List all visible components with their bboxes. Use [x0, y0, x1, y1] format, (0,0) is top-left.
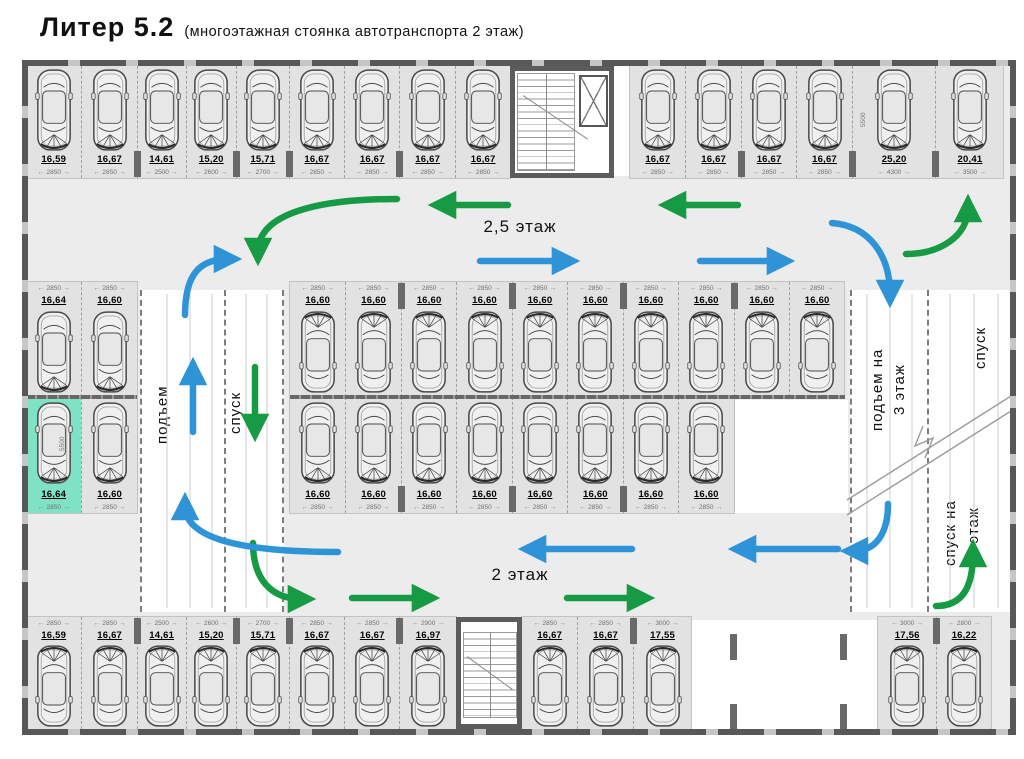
parking-spot: 16,67 2850 — [455, 66, 510, 178]
column — [932, 151, 939, 177]
left-pair-divider-wall — [26, 395, 137, 399]
spot-area-label: 15,20 — [187, 629, 237, 642]
parking-spot: 16,60 2850 — [512, 397, 567, 513]
column — [933, 618, 940, 644]
spot-area-label: 16,60 — [82, 488, 136, 501]
spot-area-label: 15,71 — [237, 629, 289, 642]
column — [730, 704, 737, 730]
parking-spot: 16,67 2850 — [685, 66, 740, 178]
spot-width-dim: 2500 — [138, 166, 186, 178]
stairwell-top — [510, 66, 614, 178]
parking-spot: 16,60 2850 — [81, 397, 136, 513]
car-icon — [400, 642, 455, 729]
ramp-down1-label-line2: 1 этаж — [965, 458, 982, 608]
spot-width-dim: 2850 — [578, 617, 632, 629]
car-icon — [578, 642, 632, 729]
parking-spot: 16,59 2850 — [26, 66, 81, 178]
parking-spot: 16,67 2850 — [289, 617, 344, 729]
floor-label-upper: 2,5 этаж — [450, 217, 590, 237]
spot-area-label: 16,67 — [630, 153, 685, 166]
parking-spot: 16,60 2850 — [678, 397, 733, 513]
car-icon — [346, 397, 400, 488]
parking-spot: 16,60 2850 — [567, 282, 622, 397]
spot-width-dim: 4300 — [853, 166, 936, 178]
staircase-icon — [517, 73, 575, 171]
staircase-icon — [463, 632, 517, 718]
spot-width-dim: 3000 — [634, 617, 691, 629]
parking-spot: 16,67 2850 — [344, 66, 399, 178]
spot-width-dim: 2850 — [290, 166, 344, 178]
column — [840, 634, 847, 660]
parking-spot: 16,97 2900 — [399, 617, 455, 729]
spot-width-dim: 2850 — [26, 282, 81, 294]
column — [840, 704, 847, 730]
spot-width-dim: 2600 — [187, 166, 237, 178]
spot-width-dim: 2600 — [187, 617, 237, 629]
car-icon — [400, 66, 454, 153]
spot-width-dim: 2850 — [400, 166, 454, 178]
spot-area-label: 15,71 — [237, 153, 289, 166]
car-icon — [138, 642, 186, 729]
parking-spot: 16,60 2850 — [81, 282, 136, 397]
car-icon — [290, 66, 344, 153]
car-icon — [742, 66, 796, 153]
car-icon — [790, 307, 844, 397]
parking-spot: 20,41 3500 — [935, 66, 1003, 178]
spot-width-dim: 2850 — [742, 166, 796, 178]
spot-area-label: 15,20 — [187, 153, 237, 166]
parking-row-bottom-right: 17,56 3000 — [878, 617, 991, 729]
spot-width-dim: 2850 — [290, 617, 344, 629]
ramp-up3-label-line1: подъем на — [869, 305, 886, 475]
spot-width-dim: 2700 — [237, 166, 289, 178]
spot-width-dim: 2850 — [568, 501, 622, 513]
spot-width-dim: 2850 — [345, 166, 399, 178]
car-icon — [513, 397, 567, 488]
column — [730, 634, 737, 660]
elevator-icon — [579, 75, 608, 127]
ramp-down1-label-line1: спуск на — [942, 458, 959, 608]
column — [849, 151, 856, 177]
spot-width-dim: 2850 — [513, 501, 567, 513]
spot-width-dim: 2850 — [290, 282, 345, 294]
spot-area-label: 16,60 — [82, 294, 136, 307]
spot-width-dim: 2850 — [735, 282, 789, 294]
spot-width-dim: 2850 — [457, 501, 511, 513]
spot-width-dim: 2850 — [346, 282, 400, 294]
open-area-bottom-center — [691, 620, 878, 732]
title-main: Литер 5.2 — [40, 12, 174, 43]
car-icon — [26, 397, 81, 488]
spot-area-label: 16,64 — [26, 294, 81, 307]
spot-area-label: 16,67 — [686, 153, 740, 166]
car-icon — [630, 66, 685, 153]
ramp-right-lane-up — [852, 290, 927, 612]
column — [738, 151, 745, 177]
spot-width-dim: 2850 — [402, 282, 456, 294]
car-icon — [937, 642, 990, 729]
parking-spot: 15,71 2700 — [236, 617, 289, 729]
car-icon — [237, 642, 289, 729]
spot-width-dim: 2850 — [457, 282, 511, 294]
car-icon — [345, 642, 399, 729]
parking-row-bottom-left: 16,59 2850 — [26, 617, 456, 729]
spot-area-label: 16,60 — [624, 294, 678, 307]
spot-width-dim: 2850 — [82, 282, 136, 294]
wall-bottom — [22, 729, 1016, 735]
spot-area-label: 16,60 — [290, 294, 345, 307]
parking-spot: 14,61 2500 — [137, 617, 186, 729]
car-icon — [522, 642, 577, 729]
parking-spot: 15,20 2600 — [186, 617, 237, 729]
parking-row-bottom-mid: 16,67 2850 — [522, 617, 691, 729]
car-icon — [26, 307, 81, 397]
parking-row-mid-lower: 16,60 2850 — [290, 397, 734, 513]
column — [620, 283, 627, 309]
column — [134, 151, 141, 177]
spot-width-dim: 2850 — [82, 617, 136, 629]
spot-area-label: 16,67 — [345, 153, 399, 166]
spot-area-label: 16,60 — [402, 488, 456, 501]
parking-spot: 17,56 3000 — [878, 617, 936, 729]
floor-label-lower: 2 этаж — [450, 565, 590, 585]
car-icon — [457, 307, 511, 397]
spot-area-label: 16,64 — [26, 488, 81, 501]
parking-spot: 16,60 2850 — [567, 397, 622, 513]
spot-width-dim: 2850 — [345, 617, 399, 629]
parking-spot: 16,67 2850 — [630, 66, 685, 178]
car-icon — [187, 66, 237, 153]
arrow-green-curve-tr — [906, 208, 968, 254]
parking-spot: 16,67 2850 — [289, 66, 344, 178]
car-icon — [82, 397, 136, 488]
car-icon — [624, 397, 678, 488]
parking-row-mid-upper: 16,60 2850 — [290, 282, 844, 397]
parking-spot: 16,60 2850 — [290, 282, 345, 397]
ramp-right-down-label: спуск — [972, 295, 989, 400]
ramp-down-label: спуск — [227, 360, 244, 465]
spot-width-dim: 2850 — [522, 617, 577, 629]
column — [286, 151, 293, 177]
parking-spot: 16,67 2850 — [344, 617, 399, 729]
spot-width-dim: 2850 — [630, 166, 685, 178]
car-icon — [457, 397, 511, 488]
wall-left — [22, 60, 28, 735]
page-title: Литер 5.2 (многоэтажная стоянка автотран… — [40, 12, 524, 43]
spot-area-label: 16,60 — [568, 488, 622, 501]
spot-width-dim: 3000 — [878, 617, 936, 629]
parking-spot: 16,60 2850 — [456, 397, 511, 513]
parking-spot: 14,61 2500 — [137, 66, 186, 178]
arrow-green-curve-tl — [258, 199, 397, 252]
car-icon — [797, 66, 851, 153]
spot-area-label: 16,60 — [457, 488, 511, 501]
car-icon — [568, 307, 622, 397]
column — [398, 486, 405, 512]
parking-spot: 16,60 2850 — [345, 282, 400, 397]
ramp-up-label: подъем — [154, 355, 171, 475]
spot-width-dim: 2850 — [346, 501, 400, 513]
car-icon — [138, 66, 186, 153]
wall-top — [22, 60, 1016, 66]
spot-area-label: 16,67 — [400, 153, 454, 166]
spot-width-dim: 2500 — [138, 617, 186, 629]
gap-top-stairs-right — [612, 64, 630, 176]
parking-spot: 16,60 2850 — [678, 282, 733, 397]
stairwell-bottom — [456, 617, 522, 729]
parking-row-top-left: 16,59 2850 — [26, 66, 510, 178]
floor-plan: подъем спуск подъем на 3 этаж спуск спус… — [22, 60, 1016, 735]
column — [134, 618, 141, 644]
parking-spot: 16,22 2800 — [936, 617, 990, 729]
spot-area-label: 16,60 — [624, 488, 678, 501]
parking-spot: 16,60 2850 — [401, 282, 456, 397]
spot-width-dim: 2900 — [400, 617, 455, 629]
column — [286, 618, 293, 644]
spot-area-label: 14,61 — [138, 153, 186, 166]
spot-width-dim: 2850 — [686, 166, 740, 178]
car-icon — [290, 642, 344, 729]
car-icon — [237, 66, 289, 153]
car-icon — [735, 307, 789, 397]
parking-spot: 16,67 2850 — [522, 617, 577, 729]
depth-dim-right: 5500 — [860, 78, 867, 162]
spot-area-label: 16,60 — [290, 488, 345, 501]
spot-area-label: 16,60 — [346, 294, 400, 307]
car-icon — [568, 397, 622, 488]
spot-area-label: 16,67 — [797, 153, 851, 166]
spot-area-label: 16,60 — [346, 488, 400, 501]
spot-area-label: 16,97 — [400, 629, 455, 642]
car-icon — [290, 397, 345, 488]
spot-area-label: 16,67 — [345, 629, 399, 642]
spot-area-label: 16,67 — [456, 153, 510, 166]
parking-spot: 16,60 2850 — [623, 397, 678, 513]
parking-spot: 16,67 2850 — [577, 617, 632, 729]
spot-width-dim: 2850 — [26, 166, 81, 178]
spot-width-dim: 2850 — [568, 282, 622, 294]
car-icon — [187, 642, 237, 729]
car-icon — [679, 307, 733, 397]
spot-area-label: 17,55 — [634, 629, 691, 642]
spot-area-label: 16,60 — [513, 294, 567, 307]
car-icon — [26, 66, 81, 153]
car-icon — [878, 642, 936, 729]
parking-spot: 16,60 2850 — [789, 282, 844, 397]
spot-area-label: 17,56 — [878, 629, 936, 642]
spot-width-dim: 2850 — [456, 166, 510, 178]
parking-spot: 16,67 2850 — [81, 617, 136, 729]
car-icon — [82, 642, 136, 729]
spot-width-dim: 2850 — [290, 501, 345, 513]
column — [396, 151, 403, 177]
spot-width-dim: 2850 — [679, 282, 733, 294]
spot-width-dim: 2850 — [26, 501, 81, 513]
column — [233, 618, 240, 644]
column — [630, 618, 637, 644]
spot-area-label: 16,60 — [457, 294, 511, 307]
column — [398, 283, 405, 309]
spot-area-label: 16,60 — [402, 294, 456, 307]
parking-spot: 15,20 2600 — [186, 66, 237, 178]
spot-width-dim: 2850 — [513, 282, 567, 294]
parking-spot: 16,59 2850 — [26, 617, 81, 729]
depth-dim-left: 5500 — [59, 412, 66, 476]
parking-pair-left-upper: 16,64 2850 — [26, 282, 137, 397]
car-icon — [290, 307, 345, 397]
car-icon — [513, 307, 567, 397]
spot-area-label: 16,60 — [679, 488, 733, 501]
car-icon — [82, 307, 136, 397]
car-icon — [686, 66, 740, 153]
spot-area-label: 16,67 — [578, 629, 632, 642]
mid-divider-wall — [290, 395, 845, 399]
spot-width-dim: 2850 — [679, 501, 733, 513]
spot-width-dim: 2850 — [624, 501, 678, 513]
spot-width-dim: 2700 — [237, 617, 289, 629]
spot-area-label: 16,67 — [742, 153, 796, 166]
parking-spot: 16,60 2850 — [456, 282, 511, 397]
spot-area-label: 14,61 — [138, 629, 186, 642]
parking-spot: 16,60 2850 — [401, 397, 456, 513]
spot-area-label: 16,60 — [735, 294, 789, 307]
wall-right — [1010, 60, 1016, 735]
parking-spot: 16,60 2850 — [623, 282, 678, 397]
parking-spot: 16,67 2850 — [399, 66, 454, 178]
car-icon — [26, 642, 81, 729]
parking-spot: 16,60 2850 — [512, 282, 567, 397]
car-icon — [456, 66, 510, 153]
spot-width-dim: 2800 — [937, 617, 990, 629]
spot-width-dim: 2850 — [82, 166, 136, 178]
spot-area-label: 16,67 — [290, 629, 344, 642]
car-icon — [346, 307, 400, 397]
spot-width-dim: 2850 — [402, 501, 456, 513]
parking-row-top-right: 16,67 2850 — [630, 66, 1003, 178]
car-icon — [402, 397, 456, 488]
ramp-up3-label-line2: 3 этаж — [891, 305, 908, 475]
column — [233, 151, 240, 177]
spot-width-dim: 2850 — [797, 166, 851, 178]
spot-area-label: 16,67 — [82, 153, 136, 166]
car-icon — [82, 66, 136, 153]
spot-area-label: 16,67 — [522, 629, 577, 642]
parking-spot: 16,67 2850 — [796, 66, 851, 178]
parking-spot: 15,71 2700 — [236, 66, 289, 178]
parking-spot: 16,60 2850 — [734, 282, 789, 397]
spot-width-dim: 2850 — [624, 282, 678, 294]
parking-spot: 16,64 2850 — [26, 397, 81, 513]
car-icon — [345, 66, 399, 153]
spot-area-label: 16,59 — [26, 153, 81, 166]
title-sub: (многоэтажная стоянка автотранспорта 2 э… — [184, 24, 524, 40]
spot-width-dim: 3500 — [936, 166, 1003, 178]
parking-pair-left-lower: 16,64 2850 — [26, 397, 137, 513]
parking-spot: 16,60 2850 — [290, 397, 345, 513]
parking-spot: 16,67 2850 — [81, 66, 136, 178]
car-icon — [634, 642, 691, 729]
car-icon — [624, 307, 678, 397]
parking-spot: 16,60 2850 — [345, 397, 400, 513]
column — [620, 486, 627, 512]
spot-width-dim: 2850 — [790, 282, 844, 294]
parking-spot: 17,55 3000 — [633, 617, 691, 729]
spot-area-label: 16,59 — [26, 629, 81, 642]
column — [509, 486, 516, 512]
column — [509, 283, 516, 309]
car-icon — [402, 307, 456, 397]
spot-area-label: 16,60 — [679, 294, 733, 307]
parking-spot: 16,67 2850 — [741, 66, 796, 178]
spot-area-label: 16,22 — [937, 629, 990, 642]
spot-area-label: 16,60 — [790, 294, 844, 307]
spot-area-label: 16,67 — [82, 629, 136, 642]
spot-area-label: 20,41 — [936, 153, 1003, 166]
column — [396, 618, 403, 644]
spot-width-dim: 2850 — [26, 617, 81, 629]
spot-area-label: 16,67 — [290, 153, 344, 166]
parking-spot: 16,64 2850 — [26, 282, 81, 397]
car-icon — [936, 66, 1003, 153]
spot-area-label: 16,60 — [568, 294, 622, 307]
car-icon — [679, 397, 733, 488]
spot-width-dim: 2850 — [82, 501, 136, 513]
open-area-mid-right — [734, 400, 848, 513]
spot-area-label: 16,60 — [513, 488, 567, 501]
column — [731, 283, 738, 309]
